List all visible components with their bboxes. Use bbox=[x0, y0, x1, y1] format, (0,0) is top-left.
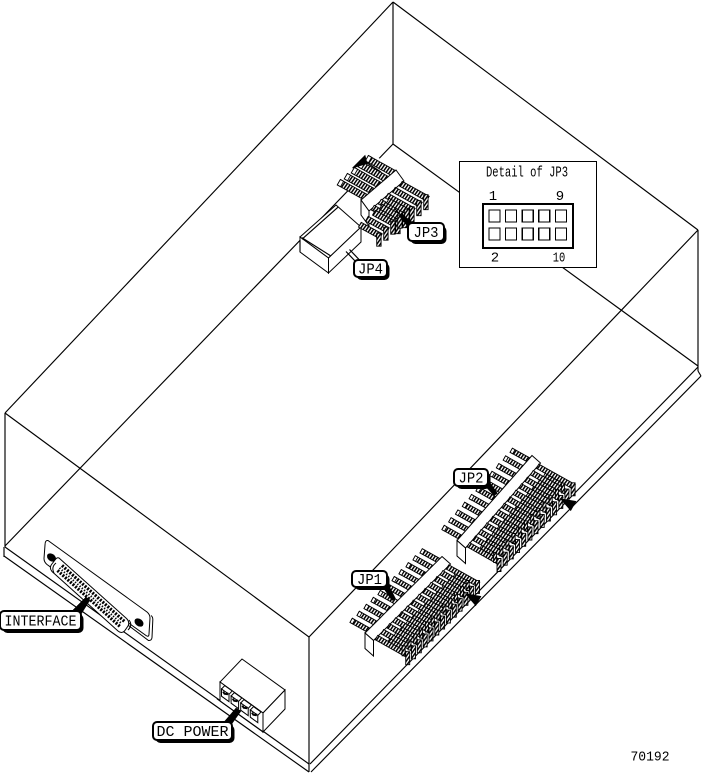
svg-text:JP4: JP4 bbox=[358, 262, 383, 278]
svg-text:INTERFACE: INTERFACE bbox=[5, 614, 77, 630]
svg-text:2: 2 bbox=[491, 251, 499, 267]
svg-text:JP1: JP1 bbox=[357, 573, 382, 589]
svg-text:JP3: JP3 bbox=[414, 226, 439, 242]
svg-text:9: 9 bbox=[556, 189, 564, 205]
svg-text:DC POWER: DC POWER bbox=[157, 725, 229, 741]
svg-text:1: 1 bbox=[489, 189, 497, 205]
svg-text:JP2: JP2 bbox=[459, 471, 484, 487]
svg-text:70192: 70192 bbox=[631, 751, 670, 766]
svg-text:10: 10 bbox=[553, 251, 566, 267]
svg-text:Detail of JP3: Detail of JP3 bbox=[486, 166, 568, 182]
